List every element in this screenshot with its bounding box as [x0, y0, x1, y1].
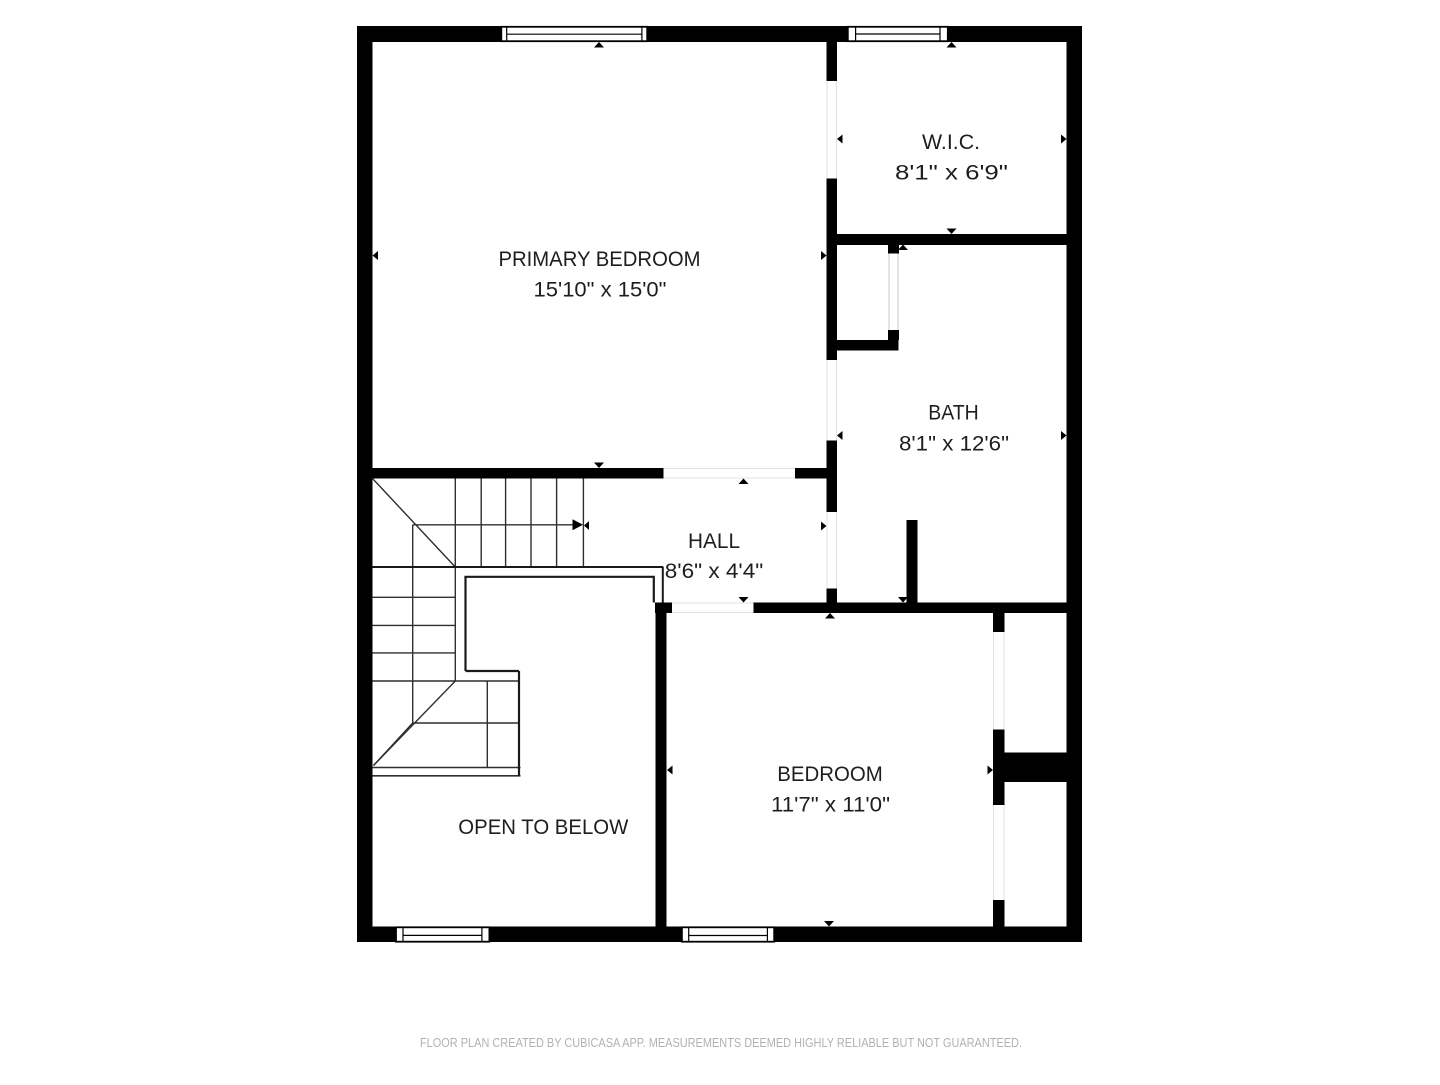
svg-text:HALL: HALL: [688, 530, 740, 553]
svg-text:W.I.C.: W.I.C.: [922, 131, 980, 154]
svg-text:FLOOR PLAN CREATED BY CUBICASA: FLOOR PLAN CREATED BY CUBICASA APP. MEAS…: [420, 1035, 1022, 1050]
svg-text:8'1" x 12'6": 8'1" x 12'6": [899, 433, 1009, 456]
svg-text:15'10" x 15'0": 15'10" x 15'0": [534, 279, 667, 302]
svg-text:BEDROOM: BEDROOM: [777, 763, 883, 786]
svg-text:8'6" x 4'4": 8'6" x 4'4": [665, 560, 764, 583]
svg-text:PRIMARY BEDROOM: PRIMARY BEDROOM: [499, 248, 701, 271]
svg-text:8'1" x 6'9": 8'1" x 6'9": [895, 162, 1008, 185]
svg-text:11'7" x 11'0": 11'7" x 11'0": [771, 794, 890, 817]
svg-text:OPEN TO BELOW: OPEN TO BELOW: [458, 816, 628, 839]
svg-text:BATH: BATH: [928, 402, 979, 425]
